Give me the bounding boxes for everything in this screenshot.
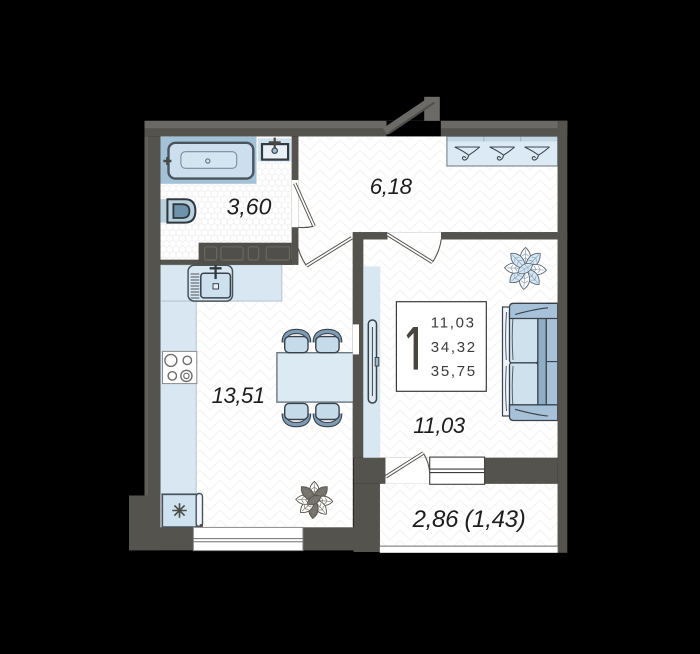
svg-text:2,86 (1,43): 2,86 (1,43) — [412, 506, 526, 533]
svg-text:35,75: 35,75 — [431, 363, 477, 380]
svg-text:3,60: 3,60 — [227, 193, 272, 219]
svg-text:34,32: 34,32 — [431, 339, 477, 356]
svg-text:11,03: 11,03 — [431, 315, 476, 332]
svg-text:11,03: 11,03 — [413, 413, 466, 438]
svg-text:13,51: 13,51 — [212, 383, 265, 408]
svg-text:6,18: 6,18 — [370, 174, 413, 199]
